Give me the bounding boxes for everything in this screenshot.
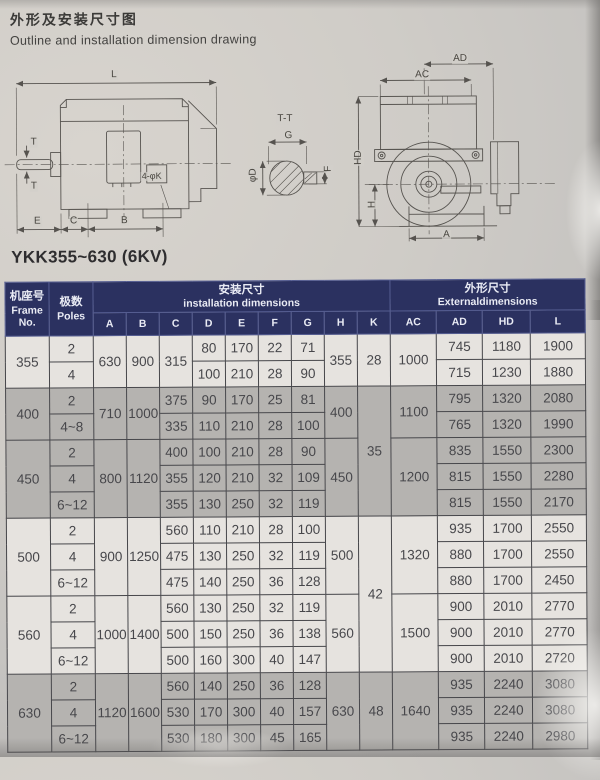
shaft-section-drawing: T-T G F φD (240, 112, 345, 221)
page-title-en: Outline and installation dimension drawi… (10, 32, 257, 48)
catalog-page: 外形及安装尺寸图 Outline and installation dimens… (0, 0, 600, 759)
dim-label-AC: AC (414, 70, 430, 80)
cell-L: 1900 (530, 333, 585, 359)
cell-A: 900 (94, 518, 127, 596)
cell-A: 1120 (95, 674, 128, 752)
cell-AD: 880 (438, 541, 484, 567)
cell-E: 210 (225, 361, 258, 387)
cell-L: 1880 (531, 359, 586, 385)
cell-K: 42 (358, 516, 392, 672)
cell-HD: 2010 (484, 593, 532, 619)
cell-H: 355 (324, 334, 357, 386)
cell-HD: 1180 (482, 333, 530, 359)
cell-frame: 355 (5, 336, 49, 388)
cell-L: 2770 (532, 593, 587, 619)
table-row: 5002900125056011021028100500421320935170… (6, 515, 586, 545)
cell-frame: 560 (7, 596, 51, 674)
cell-A: 630 (93, 336, 126, 388)
cell-D: 160 (194, 647, 227, 673)
cell-AC: 1320 (391, 516, 437, 594)
cell-E: 210 (226, 439, 259, 465)
cell-D: 130 (193, 491, 226, 517)
cell-E: 250 (227, 621, 260, 647)
col-header-A: A (93, 313, 126, 336)
cell-C: 560 (161, 595, 194, 621)
cell-D: 90 (193, 387, 226, 413)
cell-C: 500 (161, 647, 194, 673)
cell-HD: 2240 (485, 723, 533, 749)
table-row: 45001502503613890020102770 (7, 619, 587, 649)
cell-D: 130 (194, 543, 227, 569)
col-header-HD: HD (482, 310, 530, 333)
cell-A: 710 (94, 388, 127, 440)
cell-AD: 900 (438, 593, 484, 619)
cell-L: 2080 (531, 385, 586, 411)
end-view-drawing: AD AC HD H A (350, 53, 566, 246)
dim-label-4-phiK: 4-φK (141, 172, 163, 181)
cell-C: 530 (161, 699, 194, 725)
col-header-C: C (159, 312, 192, 335)
cell-HD: 1230 (483, 359, 531, 385)
dim-label-H: H (368, 200, 378, 209)
cell-C: 335 (160, 413, 193, 439)
cell-poles: 4 (50, 466, 94, 492)
cell-HD: 1700 (483, 515, 531, 541)
cell-AC: 1500 (392, 594, 438, 672)
cell-C: 560 (161, 673, 194, 699)
cell-F: 25 (259, 387, 292, 413)
col-header-D: D (192, 312, 225, 335)
cell-AC: 1100 (391, 386, 437, 438)
cell-F: 36 (260, 569, 293, 595)
dim-label-T-bottom: T (30, 182, 38, 192)
cell-E: 250 (227, 543, 260, 569)
page-title-zh: 外形及安装尺寸图 (10, 8, 257, 30)
dim-label-E: E (33, 217, 42, 227)
cell-G: 81 (292, 386, 325, 412)
cell-H: 450 (325, 438, 358, 516)
cell-AD: 900 (438, 619, 484, 645)
cell-G: 138 (293, 620, 326, 646)
cell-poles: 4 (49, 362, 93, 388)
cell-D: 120 (193, 465, 226, 491)
cell-D: 80 (192, 335, 225, 361)
cell-D: 110 (193, 517, 226, 543)
cell-F: 36 (260, 621, 293, 647)
cell-G: 119 (292, 490, 325, 516)
cell-frame: 630 (7, 674, 51, 752)
cell-H: 500 (325, 516, 358, 594)
cell-L: 2280 (531, 463, 586, 489)
cell-poles: 4 (51, 544, 95, 570)
cell-G: 100 (292, 412, 325, 438)
cell-poles: 4 (51, 700, 95, 726)
cell-AD: 935 (439, 697, 485, 723)
cell-AC: 1000 (390, 334, 436, 386)
cell-poles: 6~12 (52, 726, 96, 752)
col-header-E: E (225, 312, 258, 335)
cell-C: 560 (160, 517, 193, 543)
cell-G: 90 (292, 438, 325, 464)
cell-HD: 1700 (484, 567, 532, 593)
cell-HD: 2240 (484, 671, 532, 697)
cell-B: 1400 (128, 595, 161, 673)
cell-AC: 1640 (392, 672, 438, 750)
cell-H: 630 (326, 672, 359, 750)
cell-L: 2550 (532, 541, 587, 567)
cell-H: 560 (326, 594, 359, 672)
cell-L: 2720 (532, 645, 587, 671)
col-header-AC: AC (390, 311, 436, 334)
page-title-block: 外形及安装尺寸图 Outline and installation dimens… (10, 8, 257, 48)
cell-L: 2550 (531, 515, 586, 541)
cell-K: 35 (358, 386, 392, 516)
dim-label-A: A (442, 230, 451, 240)
cell-AD: 935 (437, 515, 483, 541)
cell-AD: 935 (438, 671, 484, 697)
col-header-K: K (357, 311, 390, 334)
cell-E: 210 (226, 517, 259, 543)
cell-frame: 500 (6, 518, 50, 596)
cell-L: 2300 (531, 437, 586, 463)
cell-F: 28 (259, 439, 292, 465)
table-row: 6302112016005601402503612863048164093522… (7, 671, 587, 701)
cell-poles: 6~12 (51, 648, 95, 674)
cell-D: 100 (192, 361, 225, 387)
cell-C: 475 (161, 543, 194, 569)
cell-poles: 2 (49, 336, 93, 362)
cell-L: 1990 (531, 411, 586, 437)
col-header-L: L (530, 310, 585, 333)
table-row: 4~83351102102810076513201990 (6, 411, 586, 441)
table-row: 4100210289071512301880 (5, 359, 585, 389)
cell-AD: 835 (437, 437, 483, 463)
table-row: 45301703004015793522403080 (7, 697, 587, 727)
group-header-external: 外形尺寸Externaldimensions (390, 279, 585, 311)
cell-K: 28 (357, 334, 390, 386)
cell-E: 250 (227, 595, 260, 621)
cell-G: 165 (294, 724, 327, 750)
dim-label-L: L (110, 70, 118, 80)
table-row: 6~125301803004516593522402980 (8, 723, 588, 753)
cell-D: 140 (194, 569, 227, 595)
cell-L: 2770 (532, 619, 587, 645)
cell-A: 1000 (95, 596, 128, 674)
cell-E: 170 (225, 335, 258, 361)
cell-F: 45 (261, 725, 294, 751)
cell-HD: 2010 (484, 645, 532, 671)
cell-D: 180 (195, 725, 228, 751)
cell-G: 147 (293, 646, 326, 672)
cell-E: 210 (226, 465, 259, 491)
cell-E: 300 (228, 725, 261, 751)
cell-C: 315 (159, 335, 192, 387)
cell-poles: 2 (51, 674, 95, 700)
cell-poles: 6~12 (50, 492, 94, 518)
cell-AD: 795 (437, 385, 483, 411)
table-row: 6~124751402503612888017002450 (7, 567, 587, 597)
cell-C: 355 (160, 491, 193, 517)
cell-D: 150 (194, 621, 227, 647)
cell-E: 300 (227, 647, 260, 673)
cell-G: 90 (291, 360, 324, 386)
cell-K: 48 (359, 672, 393, 750)
cell-F: 28 (259, 413, 292, 439)
cell-AD: 900 (438, 645, 484, 671)
dim-label-C: C (69, 216, 78, 226)
cell-E: 210 (226, 413, 259, 439)
table-row: 5602100014005601302503211956015009002010… (7, 593, 587, 623)
cell-D: 100 (193, 439, 226, 465)
cell-D: 130 (194, 595, 227, 621)
cell-C: 500 (161, 621, 194, 647)
cell-F: 36 (260, 673, 293, 699)
cell-L: 3080 (532, 671, 587, 697)
section-title: T-T (276, 114, 293, 124)
cell-F: 22 (258, 335, 291, 361)
cell-HD: 1550 (483, 463, 531, 489)
cell-L: 3080 (533, 697, 588, 723)
dim-label-G: G (283, 131, 293, 141)
cell-B: 900 (126, 335, 159, 387)
dim-label-T-top: T (30, 138, 38, 148)
cell-frame: 450 (6, 440, 50, 518)
cell-AD: 765 (437, 411, 483, 437)
dim-label-AD: AD (452, 54, 468, 64)
cell-HD: 1550 (483, 489, 531, 515)
cell-poles: 2 (51, 596, 95, 622)
table-row: 44751302503211988017002550 (7, 541, 587, 571)
cell-E: 250 (226, 491, 259, 517)
cell-HD: 1320 (483, 385, 531, 411)
dim-label-HD: HD (354, 149, 364, 166)
cell-C: 475 (161, 569, 194, 595)
cell-E: 250 (227, 673, 260, 699)
dimension-table: 机座号FrameNo.极数Poles安装尺寸installation dimen… (4, 278, 588, 753)
cell-B: 1250 (127, 517, 160, 595)
cell-C: 530 (162, 725, 195, 751)
cell-poles: 2 (50, 388, 94, 414)
cell-C: 375 (160, 387, 193, 413)
cell-poles: 4~8 (50, 414, 94, 440)
group-header-installation: 安装尺寸installation dimensions (93, 280, 390, 313)
cell-poles: 2 (50, 440, 94, 466)
cell-AD: 880 (438, 567, 484, 593)
cell-G: 119 (293, 594, 326, 620)
cell-HD: 2240 (485, 697, 533, 723)
table-title: YKK355~630 (6KV) (11, 247, 168, 268)
cell-F: 28 (259, 517, 292, 543)
cell-G: 109 (292, 464, 325, 490)
cell-B: 1120 (127, 439, 160, 517)
col-header-F: F (258, 312, 291, 335)
cell-G: 119 (293, 542, 326, 568)
cell-HD: 1550 (483, 437, 531, 463)
cell-D: 140 (194, 673, 227, 699)
cell-E: 250 (227, 569, 260, 595)
cell-L: 2980 (533, 723, 588, 749)
cell-L: 2170 (531, 489, 586, 515)
cell-E: 300 (227, 699, 260, 725)
col-header-frame: 机座号FrameNo. (5, 282, 49, 336)
cell-G: 100 (292, 516, 325, 542)
col-header-H: H (324, 311, 357, 334)
dim-label-F: F (324, 165, 334, 173)
dim-label-phiD: φD (249, 167, 259, 183)
cell-F: 28 (258, 361, 291, 387)
cell-F: 32 (260, 595, 293, 621)
cell-C: 355 (160, 465, 193, 491)
col-header-B: B (126, 312, 159, 335)
end-view-svg (350, 53, 566, 246)
table-row: 4002710100037590170258140035110079513202… (6, 385, 586, 415)
cell-AD: 745 (436, 333, 482, 359)
cell-HD: 1320 (483, 411, 531, 437)
cell-D: 170 (194, 699, 227, 725)
cell-L: 2450 (532, 567, 587, 593)
cell-D: 110 (193, 413, 226, 439)
cell-frame: 400 (6, 388, 50, 440)
cell-C: 400 (160, 439, 193, 465)
cell-F: 40 (260, 699, 293, 725)
table-row: 6~125001603004014790020102720 (7, 645, 587, 675)
cell-G: 128 (293, 568, 326, 594)
cell-AD: 815 (437, 489, 483, 515)
table-row: 3552630900315801702271355281000745118019… (5, 333, 585, 363)
cell-F: 32 (259, 465, 292, 491)
cell-poles: 4 (51, 622, 95, 648)
table-row: 6~123551302503211981515502170 (6, 489, 586, 519)
cell-AD: 935 (439, 723, 485, 749)
dim-label-B: B (120, 216, 129, 226)
table-row: 4502800112040010021028904501200835155023… (6, 437, 586, 467)
cell-AC: 1200 (391, 438, 437, 516)
cell-HD: 1700 (484, 541, 532, 567)
cell-H: 400 (325, 386, 358, 438)
cell-G: 157 (293, 698, 326, 724)
cell-AD: 815 (437, 463, 483, 489)
cell-A: 800 (94, 440, 127, 518)
cell-HD: 2010 (484, 619, 532, 645)
cell-E: 170 (226, 387, 259, 413)
cell-B: 1000 (127, 387, 160, 439)
col-header-AD: AD (436, 310, 482, 333)
table-row: 43551202103210981515502280 (6, 463, 586, 493)
col-header-poles: 极数Poles (49, 282, 93, 336)
cell-G: 71 (291, 334, 324, 360)
cell-poles: 6~12 (51, 570, 95, 596)
cell-poles: 2 (50, 518, 94, 544)
cell-G: 128 (293, 672, 326, 698)
col-header-G: G (291, 311, 324, 334)
cell-AD: 715 (437, 359, 483, 385)
cell-B: 1600 (128, 673, 161, 751)
cell-F: 40 (260, 647, 293, 673)
cell-F: 32 (260, 543, 293, 569)
side-view-drawing: L T T E C B 4-φK (2, 68, 235, 241)
cell-F: 32 (259, 491, 292, 517)
